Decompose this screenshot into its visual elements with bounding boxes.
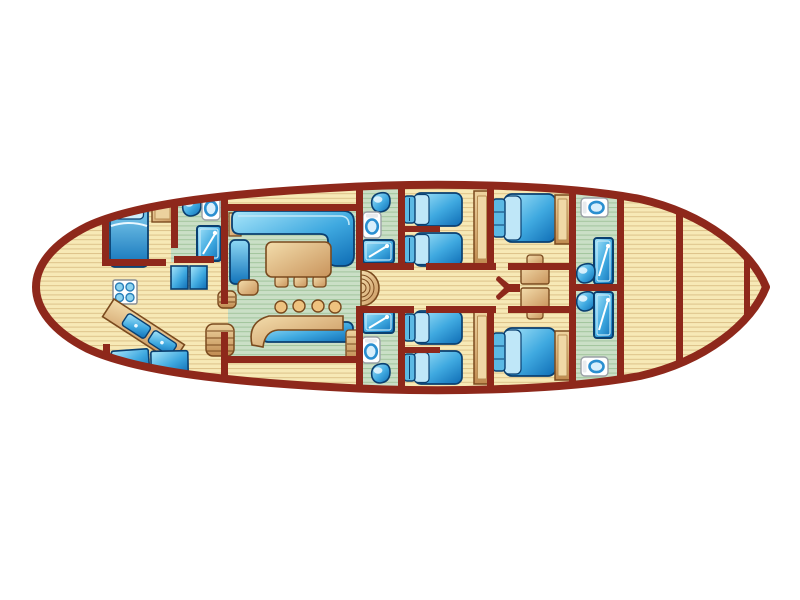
shower-icon: [363, 311, 394, 333]
wall: [356, 306, 414, 313]
bar-stool: [275, 301, 287, 313]
toilet-icon: [581, 198, 608, 217]
wall: [426, 263, 496, 270]
wall: [174, 256, 214, 263]
single-bed: [404, 311, 462, 344]
bulkhead: [676, 200, 683, 376]
fridge: [190, 266, 207, 289]
wall: [400, 226, 440, 232]
wall: [221, 190, 228, 304]
double-cabin-port: [493, 194, 570, 244]
wall: [569, 284, 624, 291]
double-cabin-starboard: [493, 328, 570, 380]
shower-icon: [197, 226, 221, 261]
wall: [228, 356, 363, 363]
double-bed: [493, 194, 556, 242]
wardrobe: [555, 331, 570, 380]
washbasin-icon: [372, 364, 390, 383]
wall: [487, 306, 494, 386]
stool: [238, 280, 258, 295]
single-bed: [404, 193, 462, 226]
yacht-deck-plan: [0, 0, 800, 600]
double-bed: [493, 328, 556, 376]
side-sofa: [230, 240, 249, 284]
wall: [398, 306, 405, 386]
companionway-steps: [206, 324, 234, 356]
wall: [356, 186, 363, 268]
washbasin-icon: [372, 193, 390, 212]
wardrobe: [555, 195, 570, 244]
deck-plan-canvas: [0, 0, 800, 600]
single-bed: [404, 351, 462, 384]
toilet-icon: [363, 212, 381, 238]
wall: [356, 306, 363, 386]
shower-icon: [594, 238, 613, 284]
dining-table: [266, 242, 331, 287]
wall: [487, 186, 494, 268]
single-bed: [404, 233, 462, 266]
washbasin-icon: [577, 264, 595, 283]
bar-stool: [293, 300, 305, 312]
washbasin-icon: [577, 292, 595, 311]
bar-stool: [312, 300, 324, 312]
wall: [103, 344, 110, 384]
wall: [426, 306, 496, 313]
toilet-icon: [362, 337, 380, 363]
toilet-icon: [581, 357, 608, 376]
wall: [228, 204, 363, 211]
wall: [102, 259, 166, 266]
bar-stool: [329, 301, 341, 313]
wall: [400, 347, 440, 353]
shower-icon: [594, 292, 613, 338]
wall: [508, 306, 576, 313]
shower-icon: [363, 240, 394, 263]
wall: [508, 263, 576, 270]
wall: [102, 200, 109, 266]
fridge: [171, 266, 188, 289]
wall: [356, 263, 414, 270]
